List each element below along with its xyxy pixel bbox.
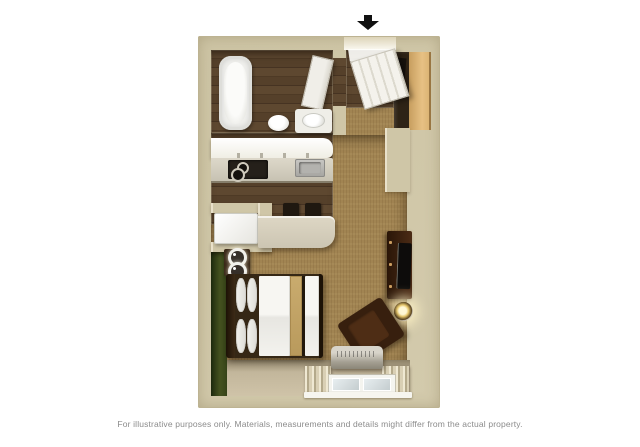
tv-stand-knob (389, 263, 392, 266)
stove-cooktop (228, 160, 268, 179)
bathtub (219, 56, 252, 130)
television (396, 243, 412, 289)
tv-stand-knob (389, 241, 392, 244)
wall-jog (385, 128, 410, 192)
floor-plan (198, 36, 440, 408)
bathtub-basin (224, 62, 247, 124)
toilet (268, 115, 289, 131)
pillow (236, 319, 246, 353)
vanity-sink (302, 113, 325, 128)
pillow (236, 278, 246, 312)
bed-comforter (259, 276, 290, 356)
kitchen-sink-bowl (299, 162, 321, 174)
window-pane (332, 378, 360, 391)
window-sill (304, 392, 412, 398)
refrigerator (214, 213, 258, 244)
bed (226, 274, 323, 358)
kitchen-sink (295, 159, 325, 177)
window-pane (363, 378, 391, 391)
stove-burner (231, 168, 245, 182)
tv-stand-knob (389, 285, 392, 288)
bathroom-vanity (295, 109, 332, 133)
kitchen-upper-cabinets (211, 138, 333, 158)
bathroom-doorway-opening (333, 58, 346, 106)
table-lamp (394, 302, 413, 321)
tv-stand (387, 231, 412, 299)
closet-shelf (409, 52, 431, 130)
entry-doorway-opening (344, 37, 396, 50)
disclaimer-caption: For illustrative purposes only. Material… (0, 419, 640, 429)
bed-comforter-foot (305, 276, 319, 356)
pillow (247, 278, 257, 312)
footboard (319, 274, 323, 358)
pillow (247, 319, 257, 353)
bar-counter (258, 216, 335, 248)
headboard (226, 274, 235, 358)
bed-runner (290, 276, 302, 356)
entrance-arrow-icon (356, 15, 380, 31)
ac-unit (331, 346, 383, 369)
